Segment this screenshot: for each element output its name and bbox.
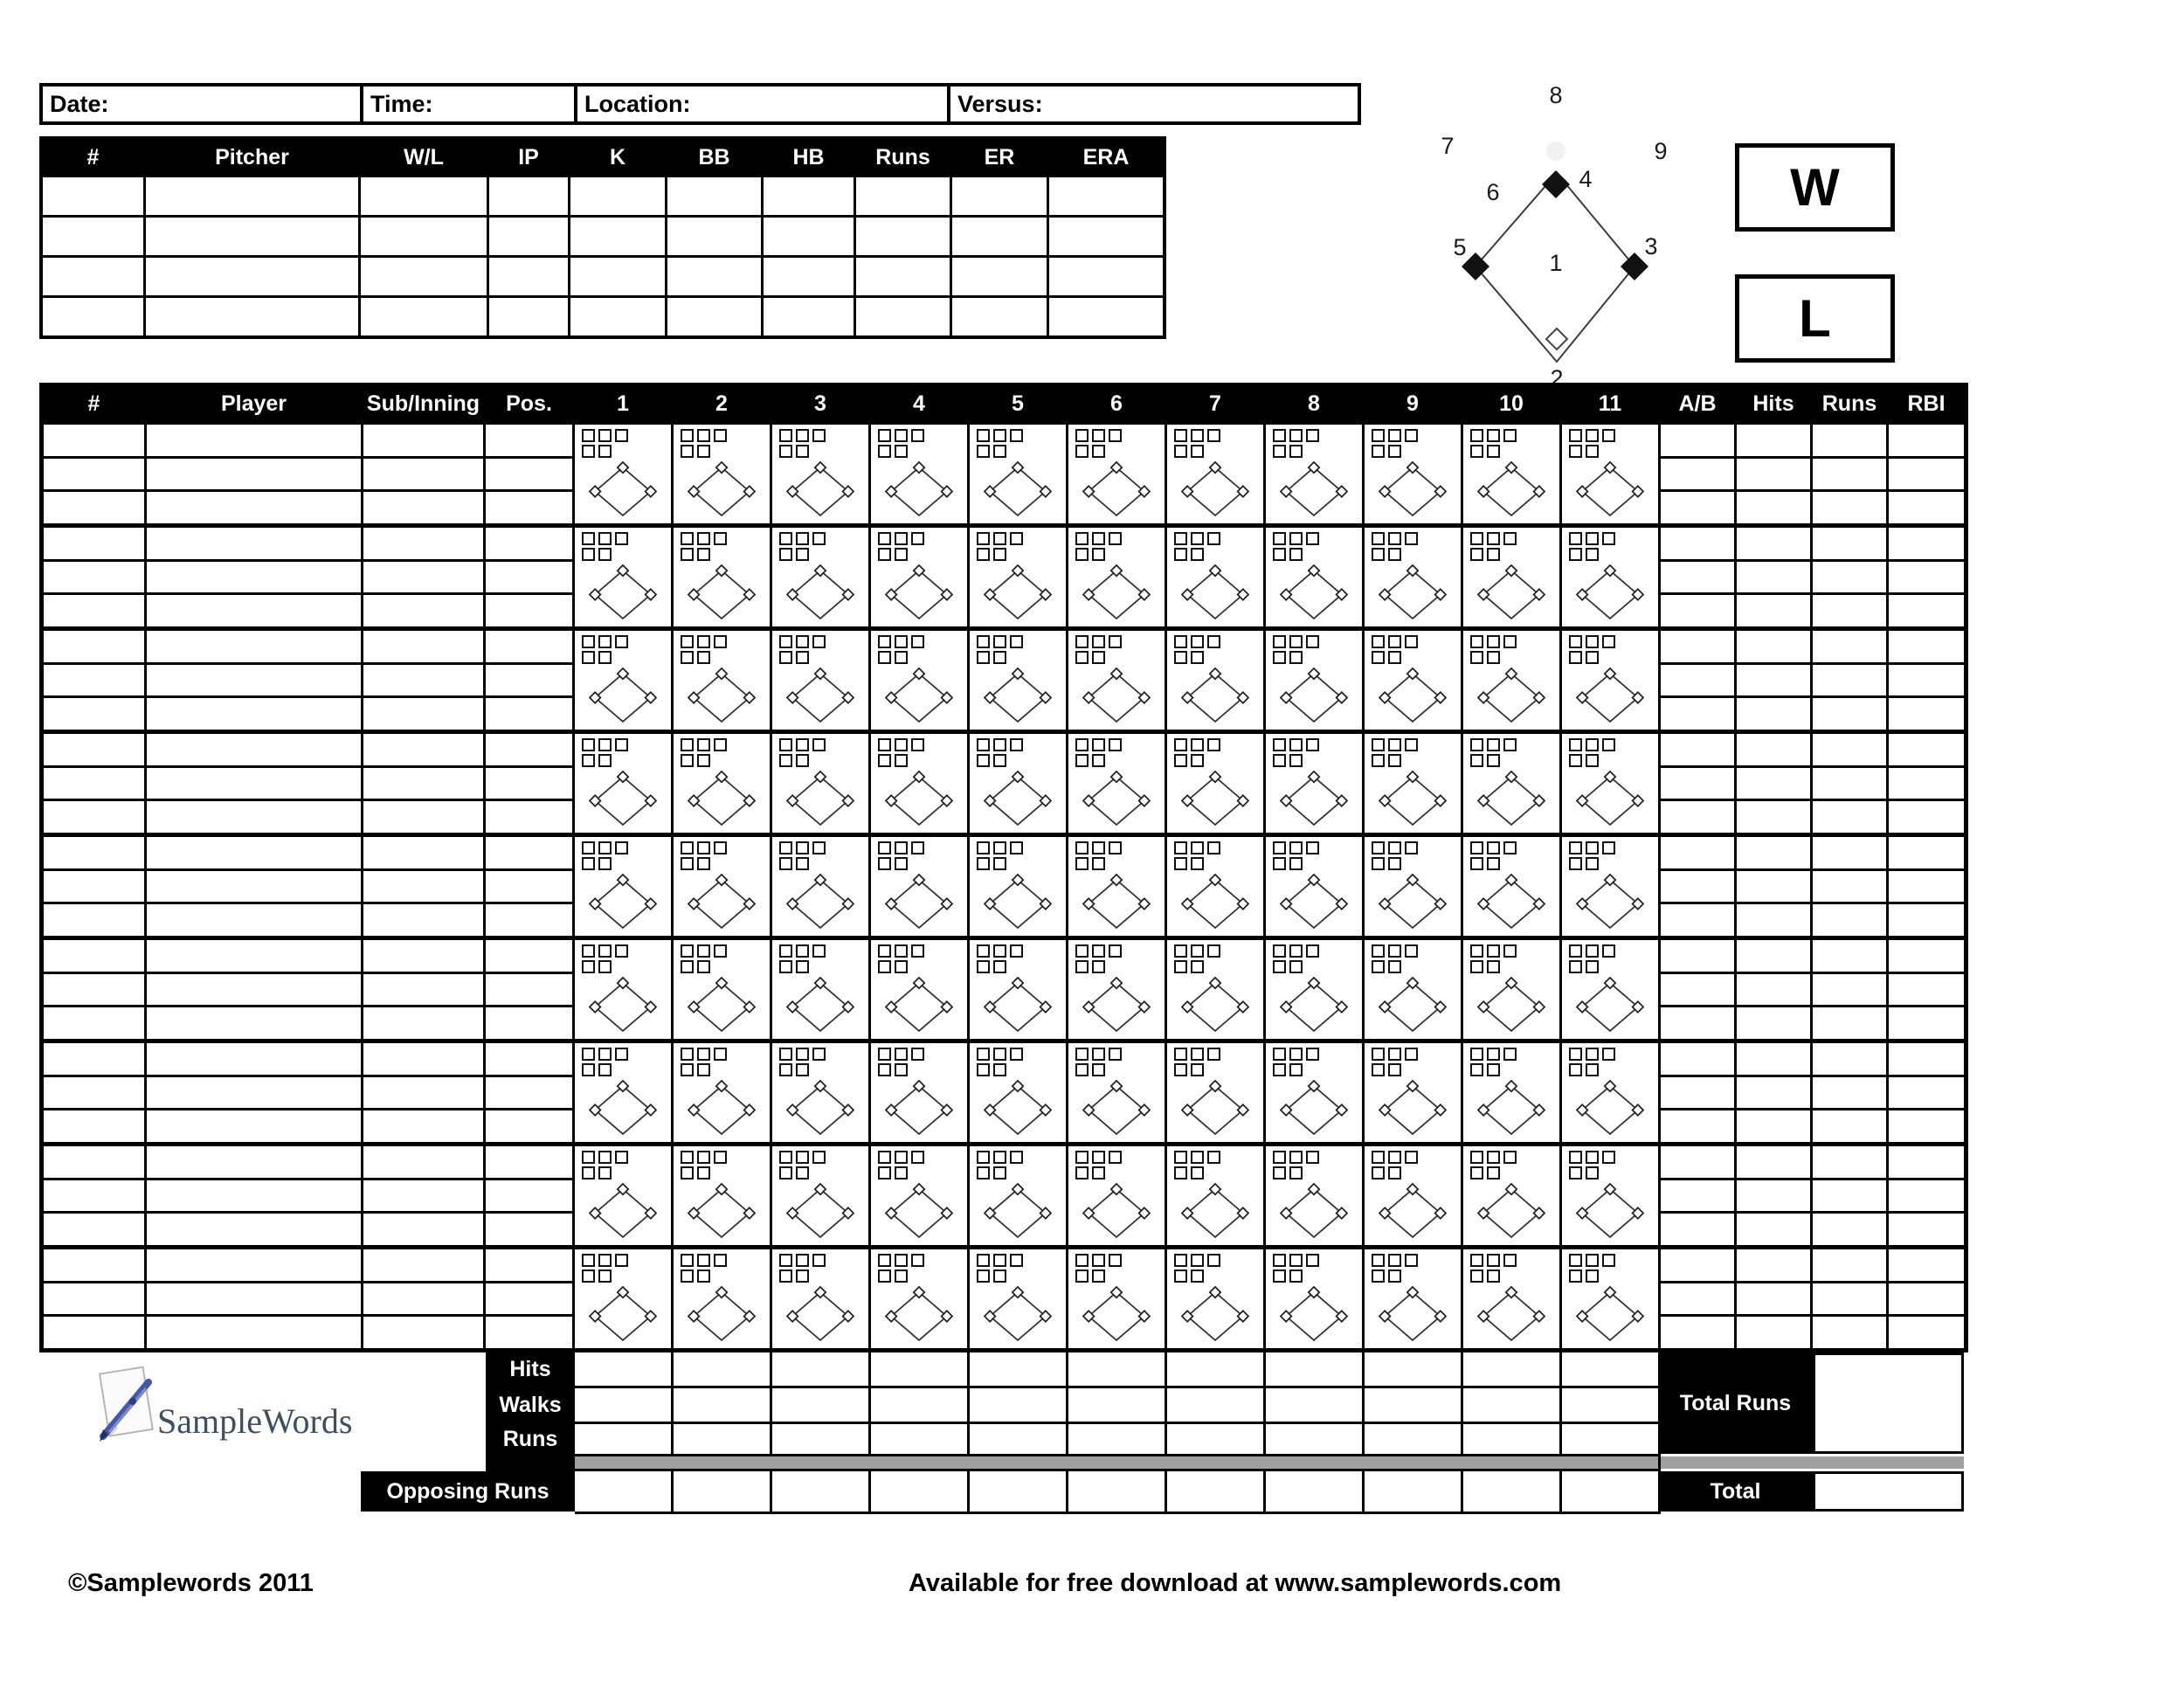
pitch-count-box[interactable] (1075, 548, 1089, 561)
player-info-cell[interactable] (486, 1283, 572, 1315)
inning-scoring-cell[interactable] (970, 940, 1066, 1039)
pitch-count-box[interactable] (1273, 651, 1286, 664)
summary-inning-cell[interactable] (1562, 1388, 1658, 1422)
player-info-cell[interactable] (486, 871, 572, 903)
batting-stat-cell[interactable] (1813, 734, 1886, 765)
inning-scoring-cell[interactable] (575, 940, 671, 1039)
pitch-count-box[interactable] (1470, 429, 1483, 442)
loss-box[interactable]: L (1735, 274, 1895, 363)
pitch-count-box[interactable] (1075, 429, 1089, 442)
inning-scoring-cell[interactable] (575, 528, 671, 626)
pitch-count-box[interactable] (812, 738, 826, 751)
batting-stat-cell[interactable] (1661, 459, 1734, 490)
pitch-count-box[interactable] (779, 1254, 792, 1267)
inning-scoring-cell[interactable] (674, 425, 770, 523)
pitch-count-box[interactable] (582, 960, 595, 973)
pitch-count-box[interactable] (977, 532, 990, 545)
pitch-count-box[interactable] (615, 429, 628, 442)
pitch-count-box[interactable] (878, 1166, 891, 1180)
pitch-count-box[interactable] (1372, 857, 1385, 870)
pitch-count-box[interactable] (1602, 532, 1615, 545)
pitch-count-box[interactable] (1569, 754, 1582, 767)
pitch-count-box[interactable] (1273, 635, 1286, 648)
inning-scoring-cell[interactable] (1562, 837, 1658, 936)
pitch-count-box[interactable] (681, 960, 694, 973)
summary-inning-cell[interactable] (1068, 1388, 1165, 1422)
pitch-count-box[interactable] (598, 1151, 612, 1164)
pitch-count-box[interactable] (1092, 944, 1105, 958)
pitch-count-box[interactable] (681, 944, 694, 958)
pitch-count-box[interactable] (796, 1063, 809, 1076)
pitcher-stat-cell[interactable] (146, 218, 358, 255)
pitch-count-box[interactable] (1075, 635, 1089, 648)
pitch-count-box[interactable] (598, 1269, 612, 1283)
inning-scoring-cell[interactable] (1463, 837, 1559, 936)
pitch-count-box[interactable] (714, 635, 727, 648)
pitch-count-box[interactable] (878, 841, 891, 854)
player-info-cell[interactable] (147, 1007, 361, 1039)
batting-stat-cell[interactable] (1813, 1214, 1886, 1245)
pitch-count-box[interactable] (812, 841, 826, 854)
summary-inning-cell[interactable] (1463, 1424, 1559, 1454)
batting-stat-cell[interactable] (1737, 1146, 1810, 1178)
pitcher-stat-cell[interactable] (1049, 298, 1163, 336)
inning-scoring-cell[interactable] (575, 734, 671, 833)
pitch-count-box[interactable] (1191, 532, 1204, 545)
pitch-count-box[interactable] (1470, 841, 1483, 854)
batting-stat-cell[interactable] (1889, 1043, 1964, 1075)
pitch-count-box[interactable] (1388, 754, 1401, 767)
opposing-runs-cell[interactable] (1463, 1471, 1559, 1512)
pitch-count-box[interactable] (1174, 429, 1187, 442)
pitch-count-box[interactable] (1372, 738, 1385, 751)
player-info-cell[interactable] (486, 595, 572, 626)
pitch-count-box[interactable] (977, 635, 990, 648)
batting-stat-cell[interactable] (1889, 459, 1964, 490)
pitch-count-box[interactable] (878, 960, 891, 973)
pitch-count-box[interactable] (1372, 445, 1385, 458)
pitch-count-box[interactable] (993, 754, 1006, 767)
pitch-count-box[interactable] (1010, 841, 1023, 854)
pitch-count-box[interactable] (878, 1254, 891, 1267)
pitch-count-box[interactable] (1174, 944, 1187, 958)
pitch-count-box[interactable] (697, 1048, 710, 1061)
inning-scoring-cell[interactable] (1365, 1043, 1461, 1142)
inning-scoring-cell[interactable] (1562, 1146, 1658, 1245)
pitch-count-box[interactable] (598, 1048, 612, 1061)
batting-stat-cell[interactable] (1889, 904, 1964, 936)
pitch-count-box[interactable] (582, 1048, 595, 1061)
batting-stat-cell[interactable] (1813, 837, 1886, 868)
pitch-count-box[interactable] (1586, 754, 1599, 767)
inning-scoring-cell[interactable] (970, 837, 1066, 936)
pitch-count-box[interactable] (1174, 841, 1187, 854)
pitch-count-box[interactable] (812, 1048, 826, 1061)
pitch-count-box[interactable] (779, 1166, 792, 1180)
pitch-count-box[interactable] (697, 445, 710, 458)
player-info-cell[interactable] (363, 1146, 483, 1178)
inning-scoring-cell[interactable] (1562, 425, 1658, 523)
inning-scoring-cell[interactable] (871, 528, 967, 626)
pitch-count-box[interactable] (1174, 754, 1187, 767)
pitch-count-box[interactable] (1174, 960, 1187, 973)
inning-scoring-cell[interactable] (1266, 940, 1362, 1039)
pitch-count-box[interactable] (681, 841, 694, 854)
pitch-count-box[interactable] (911, 429, 924, 442)
batting-stat-cell[interactable] (1889, 1180, 1964, 1212)
pitch-count-box[interactable] (1586, 1269, 1599, 1283)
pitch-count-box[interactable] (895, 1063, 908, 1076)
pitch-count-box[interactable] (1191, 738, 1204, 751)
batting-stat-cell[interactable] (1889, 734, 1964, 765)
pitcher-stat-cell[interactable] (43, 218, 143, 255)
player-info-cell[interactable] (486, 1077, 572, 1109)
batting-stat-cell[interactable] (1661, 425, 1734, 456)
player-info-cell[interactable] (44, 595, 144, 626)
batting-stat-cell[interactable] (1737, 1110, 1810, 1142)
pitch-count-box[interactable] (878, 1151, 891, 1164)
pitch-count-box[interactable] (1388, 532, 1401, 545)
summary-inning-cell[interactable] (575, 1424, 671, 1454)
summary-inning-cell[interactable] (1266, 1352, 1362, 1386)
pitch-count-box[interactable] (1273, 960, 1286, 973)
inning-scoring-cell[interactable] (575, 425, 671, 523)
pitch-count-box[interactable] (796, 1254, 809, 1267)
pitch-count-box[interactable] (977, 1048, 990, 1061)
pitch-count-box[interactable] (993, 857, 1006, 870)
player-info-cell[interactable] (486, 1214, 572, 1245)
pitch-count-box[interactable] (1109, 532, 1122, 545)
batting-stat-cell[interactable] (1813, 459, 1886, 490)
pitcher-stat-cell[interactable] (489, 218, 568, 255)
pitch-count-box[interactable] (1092, 857, 1105, 870)
pitch-count-box[interactable] (1569, 548, 1582, 561)
pitch-count-box[interactable] (714, 944, 727, 958)
batting-stat-cell[interactable] (1813, 1077, 1886, 1109)
batting-stat-cell[interactable] (1813, 528, 1886, 559)
pitcher-stat-cell[interactable] (856, 298, 950, 336)
pitch-count-box[interactable] (1273, 429, 1286, 442)
total-value-cell[interactable] (1813, 1471, 1964, 1512)
summary-inning-cell[interactable] (1365, 1388, 1461, 1422)
pitch-count-box[interactable] (779, 1048, 792, 1061)
pitch-count-box[interactable] (697, 532, 710, 545)
player-info-cell[interactable] (486, 768, 572, 799)
batting-stat-cell[interactable] (1889, 940, 1964, 972)
batting-stat-cell[interactable] (1813, 1180, 1886, 1212)
player-info-cell[interactable] (44, 1249, 144, 1281)
pitch-count-box[interactable] (1109, 635, 1122, 648)
pitch-count-box[interactable] (1388, 1048, 1401, 1061)
pitch-count-box[interactable] (1207, 738, 1220, 751)
inning-scoring-cell[interactable] (575, 631, 671, 730)
location-field[interactable]: Location: (577, 86, 947, 121)
pitch-count-box[interactable] (1487, 841, 1500, 854)
pitch-count-box[interactable] (615, 635, 628, 648)
inning-scoring-cell[interactable] (1463, 1249, 1559, 1348)
pitch-count-box[interactable] (796, 944, 809, 958)
inning-scoring-cell[interactable] (970, 528, 1066, 626)
player-info-cell[interactable] (44, 734, 144, 765)
pitch-count-box[interactable] (977, 944, 990, 958)
pitch-count-box[interactable] (1405, 635, 1418, 648)
pitch-count-box[interactable] (895, 1048, 908, 1061)
player-info-cell[interactable] (363, 1043, 483, 1075)
inning-scoring-cell[interactable] (772, 631, 868, 730)
batting-stat-cell[interactable] (1661, 1110, 1734, 1142)
batting-stat-cell[interactable] (1661, 1317, 1734, 1348)
player-info-cell[interactable] (363, 1283, 483, 1315)
pitch-count-box[interactable] (796, 841, 809, 854)
pitcher-stat-cell[interactable] (43, 298, 143, 336)
pitch-count-box[interactable] (1289, 1269, 1303, 1283)
pitch-count-box[interactable] (1174, 1166, 1187, 1180)
batting-stat-cell[interactable] (1737, 1077, 1810, 1109)
pitch-count-box[interactable] (1470, 857, 1483, 870)
pitch-count-box[interactable] (1470, 1063, 1483, 1076)
batting-stat-cell[interactable] (1737, 837, 1810, 868)
pitch-count-box[interactable] (1372, 651, 1385, 664)
summary-inning-cell[interactable] (772, 1352, 868, 1386)
player-info-cell[interactable] (363, 1317, 483, 1348)
inning-scoring-cell[interactable] (772, 734, 868, 833)
pitch-count-box[interactable] (681, 1166, 694, 1180)
pitcher-stat-cell[interactable] (43, 177, 143, 215)
player-info-cell[interactable] (147, 631, 361, 662)
batting-stat-cell[interactable] (1813, 904, 1886, 936)
pitch-count-box[interactable] (1586, 1254, 1599, 1267)
pitch-count-box[interactable] (582, 754, 595, 767)
pitcher-stat-cell[interactable] (764, 258, 854, 295)
inning-scoring-cell[interactable] (674, 940, 770, 1039)
pitch-count-box[interactable] (977, 857, 990, 870)
pitch-count-box[interactable] (681, 738, 694, 751)
pitch-count-box[interactable] (1586, 651, 1599, 664)
pitch-count-box[interactable] (1010, 1151, 1023, 1164)
batting-stat-cell[interactable] (1661, 1214, 1734, 1245)
player-info-cell[interactable] (486, 698, 572, 730)
batting-stat-cell[interactable] (1661, 1283, 1734, 1315)
pitch-count-box[interactable] (1174, 635, 1187, 648)
pitch-count-box[interactable] (1487, 1269, 1500, 1283)
inning-scoring-cell[interactable] (1463, 1043, 1559, 1142)
pitch-count-box[interactable] (895, 738, 908, 751)
batting-stat-cell[interactable] (1661, 734, 1734, 765)
pitch-count-box[interactable] (697, 738, 710, 751)
player-info-cell[interactable] (44, 528, 144, 559)
inning-scoring-cell[interactable] (1562, 528, 1658, 626)
pitch-count-box[interactable] (1602, 635, 1615, 648)
pitch-count-box[interactable] (812, 1151, 826, 1164)
pitch-count-box[interactable] (714, 841, 727, 854)
pitch-count-box[interactable] (1010, 1048, 1023, 1061)
pitch-count-box[interactable] (615, 1151, 628, 1164)
pitch-count-box[interactable] (1010, 1254, 1023, 1267)
pitch-count-box[interactable] (681, 1269, 694, 1283)
pitch-count-box[interactable] (911, 1254, 924, 1267)
batting-stat-cell[interactable] (1889, 768, 1964, 799)
pitch-count-box[interactable] (878, 532, 891, 545)
pitch-count-box[interactable] (878, 754, 891, 767)
pitch-count-box[interactable] (1569, 532, 1582, 545)
summary-inning-cell[interactable] (674, 1352, 770, 1386)
pitch-count-box[interactable] (1075, 1063, 1089, 1076)
pitch-count-box[interactable] (1207, 635, 1220, 648)
pitch-count-box[interactable] (598, 841, 612, 854)
pitch-count-box[interactable] (1191, 548, 1204, 561)
pitch-count-box[interactable] (1487, 1254, 1500, 1267)
pitch-count-box[interactable] (1273, 857, 1286, 870)
pitch-count-box[interactable] (1289, 635, 1303, 648)
player-info-cell[interactable] (44, 871, 144, 903)
pitch-count-box[interactable] (895, 429, 908, 442)
pitch-count-box[interactable] (1586, 635, 1599, 648)
pitch-count-box[interactable] (1372, 1151, 1385, 1164)
pitch-count-box[interactable] (1470, 1269, 1483, 1283)
pitch-count-box[interactable] (1273, 1063, 1286, 1076)
inning-scoring-cell[interactable] (871, 1146, 967, 1245)
batting-stat-cell[interactable] (1661, 562, 1734, 593)
pitch-count-box[interactable] (977, 1166, 990, 1180)
batting-stat-cell[interactable] (1737, 974, 1810, 1006)
inning-scoring-cell[interactable] (1167, 425, 1263, 523)
pitch-count-box[interactable] (878, 651, 891, 664)
batting-stat-cell[interactable] (1889, 1146, 1964, 1178)
player-info-cell[interactable] (486, 904, 572, 936)
pitch-count-box[interactable] (582, 857, 595, 870)
pitch-count-box[interactable] (796, 1151, 809, 1164)
pitch-count-box[interactable] (993, 944, 1006, 958)
pitch-count-box[interactable] (1207, 429, 1220, 442)
batting-stat-cell[interactable] (1661, 974, 1734, 1006)
pitch-count-box[interactable] (1075, 960, 1089, 973)
pitch-count-box[interactable] (1405, 1048, 1418, 1061)
summary-inning-cell[interactable] (1562, 1352, 1658, 1386)
pitch-count-box[interactable] (1075, 1269, 1089, 1283)
pitch-count-box[interactable] (681, 651, 694, 664)
player-info-cell[interactable] (363, 1007, 483, 1039)
pitch-count-box[interactable] (1174, 1269, 1187, 1283)
pitch-count-box[interactable] (1388, 1151, 1401, 1164)
pitch-count-box[interactable] (582, 1269, 595, 1283)
pitcher-stat-cell[interactable] (667, 258, 761, 295)
pitch-count-box[interactable] (598, 445, 612, 458)
player-info-cell[interactable] (147, 665, 361, 696)
pitcher-stat-cell[interactable] (570, 177, 665, 215)
pitcher-stat-cell[interactable] (1049, 218, 1163, 255)
pitch-count-box[interactable] (681, 1254, 694, 1267)
pitch-count-box[interactable] (977, 548, 990, 561)
pitch-count-box[interactable] (1109, 1151, 1122, 1164)
summary-inning-cell[interactable] (871, 1424, 967, 1454)
pitch-count-box[interactable] (895, 754, 908, 767)
pitch-count-box[interactable] (1388, 651, 1401, 664)
pitch-count-box[interactable] (1388, 1166, 1401, 1180)
pitch-count-box[interactable] (1289, 1166, 1303, 1180)
player-info-cell[interactable] (363, 1110, 483, 1142)
pitch-count-box[interactable] (598, 738, 612, 751)
pitch-count-box[interactable] (1470, 1048, 1483, 1061)
pitch-count-box[interactable] (1372, 1269, 1385, 1283)
inning-scoring-cell[interactable] (575, 1146, 671, 1245)
pitch-count-box[interactable] (697, 1063, 710, 1076)
pitch-count-box[interactable] (1470, 1151, 1483, 1164)
pitch-count-box[interactable] (1470, 445, 1483, 458)
pitch-count-box[interactable] (1289, 429, 1303, 442)
pitch-count-box[interactable] (1207, 841, 1220, 854)
inning-scoring-cell[interactable] (674, 837, 770, 936)
pitch-count-box[interactable] (582, 1151, 595, 1164)
pitch-count-box[interactable] (1503, 944, 1517, 958)
player-info-cell[interactable] (44, 768, 144, 799)
pitch-count-box[interactable] (1372, 1048, 1385, 1061)
pitch-count-box[interactable] (1273, 1166, 1286, 1180)
pitch-count-box[interactable] (1273, 1048, 1286, 1061)
batting-stat-cell[interactable] (1889, 1283, 1964, 1315)
pitch-count-box[interactable] (1405, 738, 1418, 751)
pitcher-stat-cell[interactable] (1049, 258, 1163, 295)
pitch-count-box[interactable] (714, 1254, 727, 1267)
pitch-count-box[interactable] (1075, 738, 1089, 751)
pitch-count-box[interactable] (779, 1269, 792, 1283)
player-info-cell[interactable] (363, 562, 483, 593)
pitch-count-box[interactable] (598, 944, 612, 958)
pitch-count-box[interactable] (1191, 754, 1204, 767)
pitch-count-box[interactable] (1586, 1048, 1599, 1061)
pitch-count-box[interactable] (1569, 738, 1582, 751)
pitch-count-box[interactable] (1273, 1254, 1286, 1267)
pitch-count-box[interactable] (895, 548, 908, 561)
inning-scoring-cell[interactable] (970, 425, 1066, 523)
batting-stat-cell[interactable] (1813, 974, 1886, 1006)
player-info-cell[interactable] (486, 665, 572, 696)
pitch-count-box[interactable] (779, 635, 792, 648)
pitch-count-box[interactable] (598, 548, 612, 561)
pitch-count-box[interactable] (582, 548, 595, 561)
pitch-count-box[interactable] (779, 1063, 792, 1076)
batting-stat-cell[interactable] (1889, 1007, 1964, 1039)
player-info-cell[interactable] (44, 425, 144, 456)
pitch-count-box[interactable] (1569, 960, 1582, 973)
player-info-cell[interactable] (363, 425, 483, 456)
batting-stat-cell[interactable] (1889, 562, 1964, 593)
pitch-count-box[interactable] (1289, 651, 1303, 664)
pitch-count-box[interactable] (1273, 841, 1286, 854)
inning-scoring-cell[interactable] (1562, 940, 1658, 1039)
player-info-cell[interactable] (363, 940, 483, 972)
player-info-cell[interactable] (147, 871, 361, 903)
inning-scoring-cell[interactable] (1463, 1146, 1559, 1245)
inning-scoring-cell[interactable] (772, 1146, 868, 1245)
pitch-count-box[interactable] (1092, 841, 1105, 854)
pitch-count-box[interactable] (1092, 738, 1105, 751)
player-info-cell[interactable] (147, 1283, 361, 1315)
pitch-count-box[interactable] (1289, 1063, 1303, 1076)
player-info-cell[interactable] (147, 425, 361, 456)
pitch-count-box[interactable] (1092, 754, 1105, 767)
inning-scoring-cell[interactable] (871, 631, 967, 730)
pitch-count-box[interactable] (1174, 445, 1187, 458)
summary-inning-cell[interactable] (674, 1388, 770, 1422)
pitch-count-box[interactable] (1487, 1063, 1500, 1076)
pitch-count-box[interactable] (1487, 1151, 1500, 1164)
inning-scoring-cell[interactable] (1463, 734, 1559, 833)
pitch-count-box[interactable] (1289, 944, 1303, 958)
player-info-cell[interactable] (363, 904, 483, 936)
pitch-count-box[interactable] (796, 857, 809, 870)
pitch-count-box[interactable] (1569, 445, 1582, 458)
pitch-count-box[interactable] (977, 1151, 990, 1164)
